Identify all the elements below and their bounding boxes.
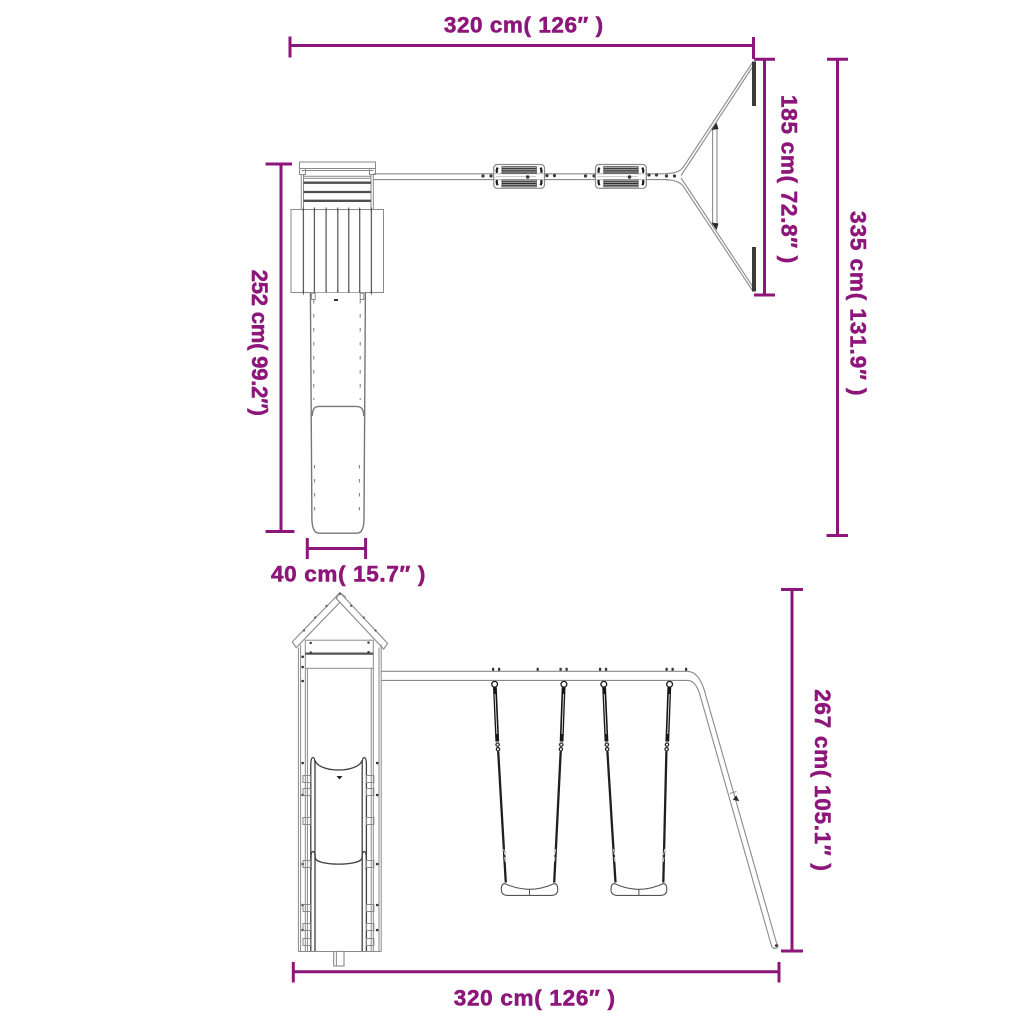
svg-text:40 cm( 15.7″ ): 40 cm( 15.7″ ) (271, 562, 426, 587)
svg-text:267 cm( 105.1″ ): 267 cm( 105.1″ ) (810, 689, 835, 871)
svg-text:252 cm( 99.2″): 252 cm( 99.2″) (247, 270, 272, 416)
svg-text:335 cm( 131.9″ ): 335 cm( 131.9″ ) (846, 211, 871, 396)
svg-text:185 cm( 72.8″ ): 185 cm( 72.8″ ) (777, 95, 802, 264)
svg-text:320 cm( 126″ ): 320 cm( 126″ ) (454, 985, 616, 1010)
svg-text:320 cm( 126″ ): 320 cm( 126″ ) (444, 12, 604, 37)
